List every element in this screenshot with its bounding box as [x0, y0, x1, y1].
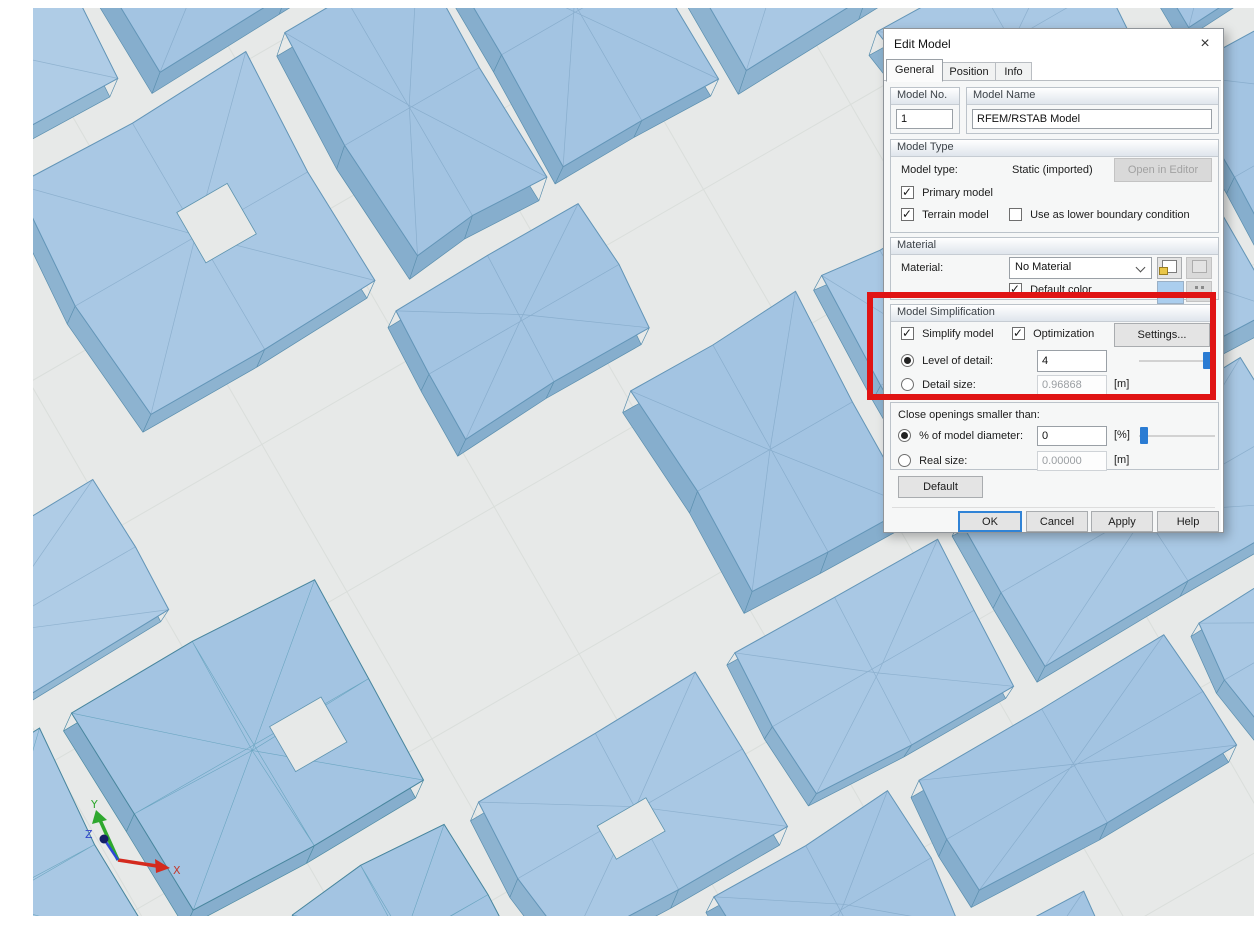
material-group-label: Material	[891, 238, 1218, 255]
percent-diameter-input[interactable]	[1037, 426, 1107, 446]
divider	[892, 507, 1215, 508]
default-color-label: Default color	[1030, 284, 1092, 296]
radio-icon	[901, 378, 914, 391]
checkbox-icon	[1012, 327, 1025, 340]
close-openings-group: Close openings smaller than: % of model …	[890, 402, 1219, 470]
simplify-model-label: Simplify model	[922, 328, 994, 340]
radio-icon	[898, 454, 911, 467]
primary-model-label: Primary model	[922, 187, 993, 199]
model-type-label: Model type:	[901, 164, 958, 176]
terrain-model-checkbox[interactable]: Terrain model	[901, 208, 989, 221]
default-button[interactable]: Default	[898, 476, 983, 498]
detail-size-unit: [m]	[1114, 378, 1129, 390]
material-label: Material:	[901, 262, 943, 274]
detail-size-input	[1037, 375, 1107, 395]
dialog-title: Edit Model	[894, 37, 951, 51]
percent-diameter-radio[interactable]: % of model diameter:	[898, 429, 1023, 442]
model-type-group-label: Model Type	[891, 140, 1218, 157]
checkbox-icon	[901, 208, 914, 221]
color-swatch	[1157, 281, 1184, 304]
new-material-button[interactable]	[1157, 257, 1182, 279]
level-of-detail-label: Level of detail:	[922, 355, 993, 367]
material-dropdown[interactable]: No Material	[1009, 257, 1152, 279]
checkbox-icon	[1009, 208, 1022, 221]
tab-info[interactable]: Info	[995, 62, 1032, 81]
model-name-group-label: Model Name	[967, 88, 1218, 105]
cancel-button[interactable]: Cancel	[1026, 511, 1088, 532]
simplify-model-checkbox[interactable]: Simplify model	[901, 327, 994, 340]
slider-track	[1139, 360, 1209, 362]
apply-button[interactable]: Apply	[1091, 511, 1153, 532]
model-type-value: Static (imported)	[1012, 164, 1093, 176]
model-name-input[interactable]	[972, 109, 1212, 129]
optimization-label: Optimization	[1033, 328, 1094, 340]
optimization-checkbox[interactable]: Optimization	[1012, 327, 1094, 340]
level-of-detail-slider[interactable]	[1139, 352, 1209, 370]
radio-icon	[901, 354, 914, 367]
edit-material-icon	[1192, 260, 1207, 273]
axis-x-label: X	[173, 864, 181, 877]
model-no-group: Model No.	[890, 87, 960, 134]
edit-model-dialog: Edit Model × General Position Info Model…	[883, 28, 1224, 533]
slider-handle[interactable]	[1140, 427, 1148, 444]
primary-model-checkbox[interactable]: Primary model	[901, 186, 993, 199]
checkbox-icon	[1009, 283, 1022, 296]
model-no-group-label: Model No.	[891, 88, 959, 105]
real-size-input	[1037, 451, 1107, 471]
terrain-model-label: Terrain model	[922, 209, 989, 221]
new-material-icon	[1162, 260, 1177, 273]
default-color-checkbox[interactable]: Default color	[1009, 283, 1092, 296]
application-window: XYZ Edit Model × General Position Info M…	[0, 0, 1254, 941]
model-no-input[interactable]	[896, 109, 953, 129]
radio-icon	[898, 429, 911, 442]
checkbox-icon	[901, 327, 914, 340]
tab-position[interactable]: Position	[942, 62, 996, 81]
percent-diameter-slider[interactable]	[1139, 427, 1215, 445]
level-of-detail-input[interactable]	[1037, 350, 1107, 372]
chevron-down-icon	[1136, 263, 1146, 273]
model-simplification-group-label: Model Simplification	[891, 305, 1214, 322]
help-button[interactable]: Help	[1157, 511, 1219, 532]
material-group: Material Material: No Material Default c…	[890, 237, 1219, 300]
material-dropdown-value: No Material	[1015, 261, 1071, 273]
color-picker-button	[1186, 281, 1212, 302]
axis-y-label: Y	[90, 798, 98, 811]
close-openings-label: Close openings smaller than:	[898, 409, 1040, 421]
level-of-detail-radio[interactable]: Level of detail:	[901, 354, 993, 367]
real-size-radio[interactable]: Real size:	[898, 454, 967, 467]
lower-boundary-checkbox[interactable]: Use as lower boundary condition	[1009, 208, 1190, 221]
close-icon: ×	[1200, 35, 1209, 52]
slider-handle[interactable]	[1203, 352, 1211, 369]
real-size-label: Real size:	[919, 455, 967, 467]
tab-general[interactable]: General	[886, 59, 943, 82]
edit-material-button	[1186, 257, 1212, 279]
color-picker-icon	[1195, 286, 1204, 295]
close-button[interactable]: ×	[1192, 33, 1218, 55]
percent-diameter-label: % of model diameter:	[919, 430, 1023, 442]
detail-size-label: Detail size:	[922, 379, 976, 391]
model-name-group: Model Name	[966, 87, 1219, 134]
checkbox-icon	[901, 186, 914, 199]
model-simplification-group: Model Simplification Simplify model Opti…	[890, 304, 1215, 396]
slider-track	[1139, 435, 1215, 437]
tab-page-general: Model No. Model Name Model Type Model ty…	[884, 80, 1221, 532]
detail-size-radio[interactable]: Detail size:	[901, 378, 976, 391]
model-type-group: Model Type Model type: Static (imported)…	[890, 139, 1219, 233]
lower-boundary-label: Use as lower boundary condition	[1030, 209, 1190, 221]
ok-button[interactable]: OK	[958, 511, 1022, 532]
settings-button[interactable]: Settings...	[1114, 323, 1210, 347]
percent-diameter-unit: [%]	[1114, 429, 1130, 441]
real-size-unit: [m]	[1114, 454, 1129, 466]
open-in-editor-button: Open in Editor	[1114, 158, 1212, 182]
axis-z-label: Z	[85, 828, 93, 841]
